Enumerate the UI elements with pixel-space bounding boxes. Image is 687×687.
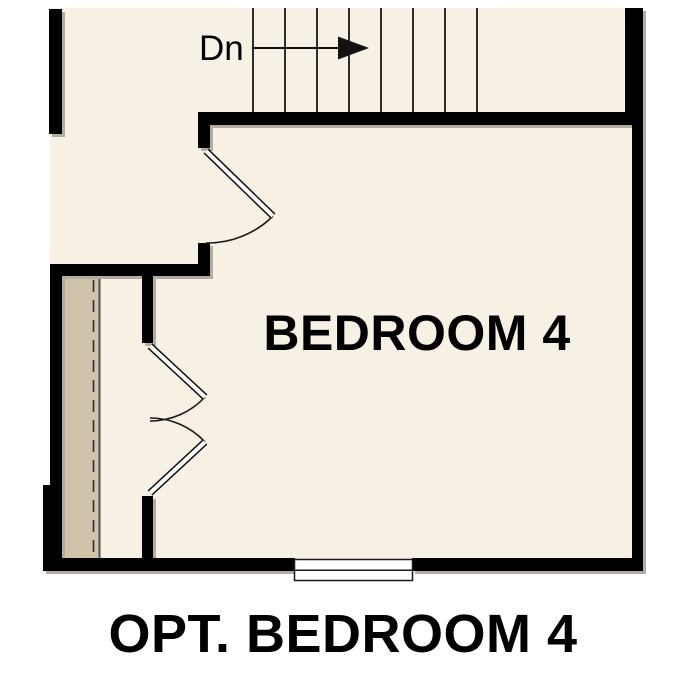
closet-floor [62, 276, 99, 558]
floorplan-drawing: Dn BEDROOM 4 OPT. BEDROOM 4 [0, 0, 687, 687]
stair-label: Dn [199, 29, 244, 68]
plan-caption: OPT. BEDROOM 4 [108, 604, 577, 664]
room-label: BEDROOM 4 [263, 305, 570, 361]
floorplan-page: Dn BEDROOM 4 OPT. BEDROOM 4 [0, 0, 687, 687]
floor-area [50, 8, 643, 571]
window [295, 560, 413, 581]
